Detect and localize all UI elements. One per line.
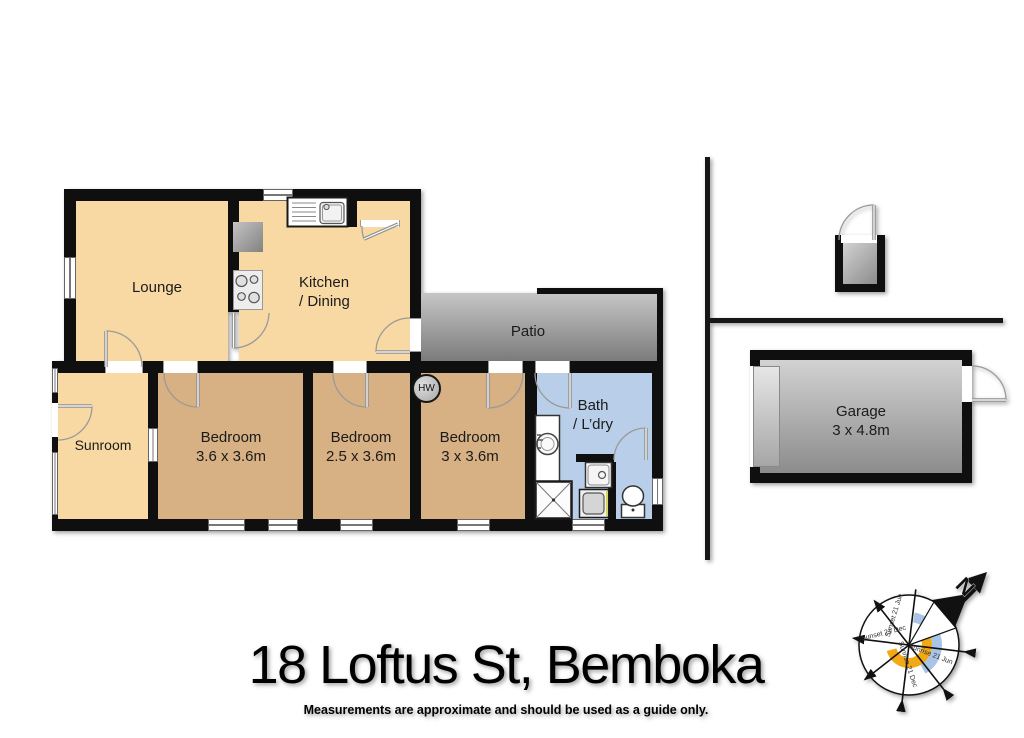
patio-label-text: Patio — [511, 323, 545, 340]
kitchen-sink — [288, 198, 348, 227]
kitchen-patio-door — [376, 318, 410, 352]
bedroom3-label-text: Bedroom — [440, 429, 501, 446]
washing-machine — [580, 490, 609, 518]
lounge-label: Lounge — [107, 278, 207, 297]
floor-plan: HW Lounge Kitchen / Dining Patio Sunroom… — [0, 0, 1024, 738]
north-arrow-icon: N — [948, 572, 987, 614]
bedroom1-label: Bedroom 3.6 x 3.6m — [171, 428, 291, 466]
garage-side-door — [972, 366, 1006, 400]
hot-water-label: HW — [418, 383, 435, 394]
bedroom1-door — [164, 373, 198, 407]
bedroom2-label-text: Bedroom — [331, 429, 392, 446]
toilet — [622, 486, 645, 518]
lounge-label-text: Lounge — [132, 279, 182, 296]
kitchen-label: Kitchen / Dining — [299, 273, 394, 311]
disclaimer-text: Measurements are approximate and should … — [0, 703, 1012, 717]
cooktop — [234, 271, 263, 310]
bedroom1-label-text: Bedroom — [201, 429, 262, 446]
sunroom-entry-door — [58, 406, 92, 440]
shower — [536, 482, 572, 519]
kitchen-label-line1: Kitchen — [299, 274, 349, 291]
bedroom3-label: Bedroom 3 x 3.6m — [410, 428, 530, 466]
lounge-sunroom-door — [106, 331, 142, 367]
shed-door — [839, 205, 874, 240]
hot-water-tank: HW — [412, 374, 441, 403]
garage-dims: 3 x 4.8m — [791, 421, 931, 440]
bath-label-line1: Bath — [578, 397, 609, 414]
kitchen-label-line2: / Dining — [299, 292, 394, 311]
page-title: 18 Loftus St, Bemboka — [0, 634, 1012, 696]
bedroom2-door — [333, 373, 367, 407]
garage-label: Garage 3 x 4.8m — [791, 402, 931, 440]
patio-label: Patio — [488, 322, 568, 341]
bath-label-line2: / L’dry — [552, 415, 634, 434]
bedroom1-dims: 3.6 x 3.6m — [171, 447, 291, 466]
laundry-tub — [586, 463, 612, 488]
bedroom2-label: Bedroom 2.5 x 3.6m — [301, 428, 421, 466]
floorplan-page: HW Lounge Kitchen / Dining Patio Sunroom… — [0, 0, 1024, 738]
bedroom3-dims: 3 x 3.6m — [410, 447, 530, 466]
bedroom2-dims: 2.5 x 3.6m — [301, 447, 421, 466]
bath-label: Bath / L’dry — [552, 396, 634, 434]
bedroom3-door — [488, 373, 523, 408]
kitchen-back-door — [362, 224, 398, 239]
sunroom-label: Sunroom — [58, 436, 148, 455]
lounge-kitchen-door — [234, 313, 270, 348]
garage-label-text: Garage — [836, 403, 886, 420]
sunroom-label-text: Sunroom — [75, 437, 132, 453]
